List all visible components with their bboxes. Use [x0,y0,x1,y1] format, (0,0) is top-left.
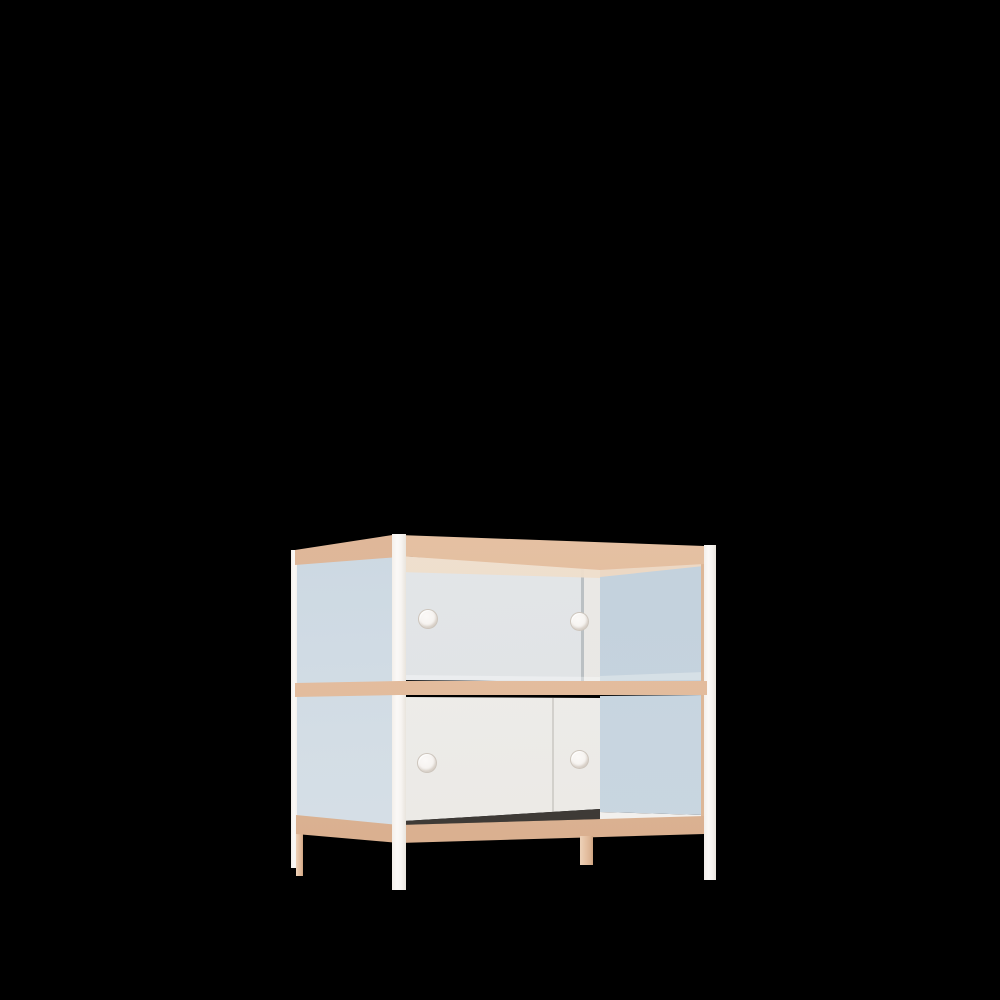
upper-door-stile [0,0,1000,1000]
lower-door-track-shadow [0,0,1000,1000]
product-render-stage [0,0,1000,1000]
left-side-glass-panel [0,0,1000,1000]
finger-hole-lower-right [570,750,589,769]
finger-hole-upper-right [570,612,589,631]
back-left-leg [296,832,303,876]
interior-ceiling-right-edge [0,0,1000,1000]
back-middle-leg [580,836,593,865]
middle-shelf-highlight [0,0,1000,1000]
upper-door-stile-edge [0,0,1000,1000]
interior-ceiling [0,0,1000,1000]
front-right-post [704,545,716,880]
bottom-rail [0,0,1000,1000]
top-shelf-front-edge [0,0,1000,1000]
upper-right-side-glass [0,0,1000,1000]
lower-door-seam [0,0,1000,1000]
middle-shelf [0,0,1000,1000]
upper-sliding-door [0,0,1000,1000]
top-shelf-left-edge [0,0,1000,1000]
front-left-post [392,534,406,890]
lower-right-side-glass [0,0,1000,1000]
finger-hole-upper-left [418,609,438,629]
middle-shelf-top-surface [0,0,1000,1000]
interior-floor [0,0,1000,1000]
finger-hole-lower-left [417,753,437,773]
back-right-corner-edge [0,0,1000,1000]
lower-sliding-door [0,0,1000,1000]
